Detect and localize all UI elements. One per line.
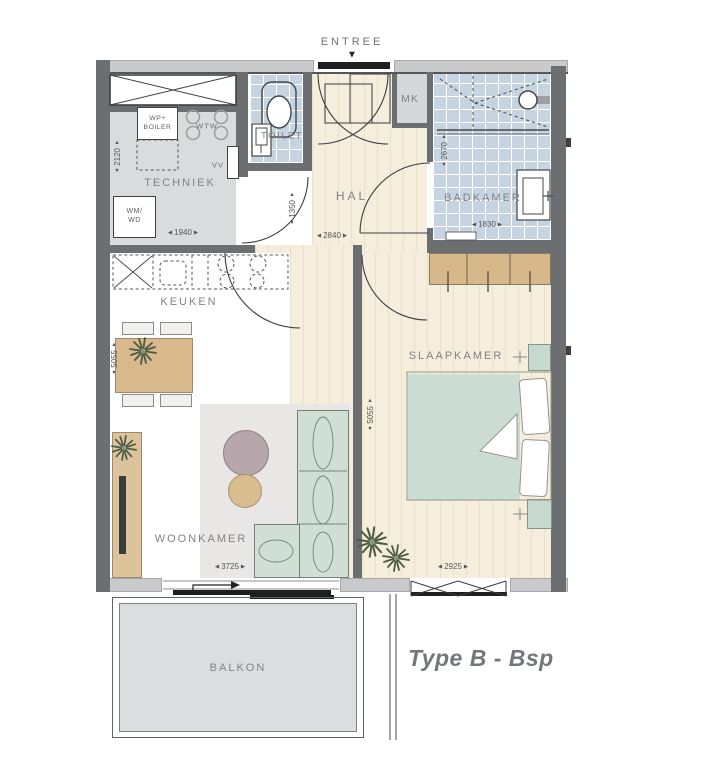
wall-toilet-bottom	[236, 163, 312, 171]
dim-living-height: ▲ 5055 ▼	[108, 342, 120, 376]
arrow-left-icon: ◀	[317, 233, 321, 239]
room-label-mk: MK	[401, 93, 419, 105]
chair	[160, 394, 192, 407]
hal-opening-floor	[255, 245, 290, 253]
dim-bedroom-height: ▲ 5055 ▼	[364, 398, 376, 432]
room-label-woonkamer: WOONKAMER	[155, 533, 248, 545]
dim-techniek-width: ◀ 1940 ▶	[168, 228, 198, 237]
arrow-left-icon: ◀	[472, 222, 476, 228]
badkamer-floor	[433, 72, 551, 240]
room-label-toilet: TOILET	[261, 131, 303, 142]
wall-badkamer-left-top	[427, 72, 433, 162]
sofa-corner-section	[254, 524, 300, 578]
vv-unit	[227, 146, 239, 179]
arrow-up-icon: ▲	[111, 342, 116, 348]
nightstand-top	[528, 344, 551, 371]
wtw-label: WTW	[196, 122, 218, 131]
wall-tick-2	[566, 346, 571, 355]
nightstand-bottom	[527, 499, 552, 529]
entry-arrow-icon: ▼	[347, 50, 357, 61]
room-label-keuken: KEUKEN	[160, 296, 217, 308]
wall-toilet-right	[303, 72, 312, 167]
arrow-right-icon: ▶	[464, 564, 468, 570]
arrow-right-icon: ▶	[343, 233, 347, 239]
chair	[160, 322, 192, 335]
arrow-up-icon: ▲	[441, 134, 446, 140]
vent-shaft	[110, 75, 236, 105]
arrow-right-icon: ▶	[194, 230, 198, 236]
arrow-up-icon: ▲	[289, 192, 294, 198]
bedroom-window-frame	[411, 592, 507, 596]
coffee-table-small	[228, 474, 262, 508]
chair	[122, 394, 154, 407]
arrow-left-icon: ◀	[438, 564, 442, 570]
tv	[119, 476, 126, 554]
arrow-down-icon: ▼	[114, 168, 119, 174]
kitchen-appliance-x	[114, 256, 152, 288]
wall-left	[96, 60, 110, 592]
floor-plan: WP+ BOILER WM/ WD	[0, 0, 707, 781]
room-label-techniek: TECHNIEK	[144, 177, 216, 189]
arrow-left-icon: ◀	[168, 230, 172, 236]
arrow-up-icon: ▲	[114, 140, 119, 146]
wardrobe	[429, 253, 551, 285]
arrow-down-icon: ▼	[367, 426, 372, 432]
dim-slaapkamer-width: ◀ 2925 ▶	[438, 562, 468, 571]
arrow-up-icon: ▲	[367, 398, 372, 404]
room-label-slaapkamer: SLAAPKAMER	[409, 350, 504, 362]
arrow-down-icon: ▼	[441, 162, 446, 168]
arrow-down-icon: ▼	[111, 370, 116, 376]
wall-hal-keuken	[96, 245, 255, 253]
privacy-screen	[390, 594, 396, 740]
dim-techniek-height: ▲ 2120 ▼	[111, 140, 123, 174]
top-wall-line	[96, 72, 568, 74]
coffee-table-large	[223, 430, 269, 476]
wm-label: WM/	[127, 208, 143, 217]
sofa-long-section	[297, 410, 349, 578]
plan-type-label: Type B - Bsp	[408, 645, 554, 672]
wall-middle	[353, 245, 362, 578]
arrow-left-icon: ◀	[215, 564, 219, 570]
wp-boiler-label-1: WP+	[149, 115, 165, 123]
arrow-down-icon: ▼	[289, 220, 294, 226]
arrow-right-icon: ▶	[241, 564, 245, 570]
wall-tick-1	[566, 138, 571, 147]
room-label-hal: HAL	[336, 189, 368, 203]
chair	[122, 322, 154, 335]
dim-hal-width: ◀ 2840 ▶	[317, 231, 347, 240]
dim-badkamer-height: ▲ 2670 ▼	[438, 134, 450, 168]
wm-wd-unit: WM/ WD	[113, 196, 156, 238]
tv-cabinet	[112, 432, 142, 578]
room-label-balkon: BALKON	[210, 662, 267, 674]
entree-label: ENTREE	[321, 36, 384, 48]
wp-boiler-label-2: BOILER	[144, 124, 172, 132]
toilet-floor	[250, 75, 303, 163]
entry-door	[318, 62, 390, 69]
bed-duvet	[408, 374, 520, 500]
dim-badkamer-width: ◀ 1830 ▶	[472, 220, 502, 229]
dining-table	[115, 338, 193, 393]
wall-right	[551, 66, 566, 592]
sliding-door-glass	[163, 581, 339, 589]
wp-boiler-unit: WP+ BOILER	[137, 107, 178, 140]
kitchen-counter	[113, 255, 288, 289]
room-label-badkamer: BADKAMER	[444, 192, 522, 204]
wall-badkamer-bottom	[427, 240, 551, 253]
arrow-right-icon: ▶	[498, 222, 502, 228]
vv-label: VV	[212, 161, 224, 170]
dim-woonkamer-width: ◀ 3725 ▶	[215, 562, 245, 571]
wd-label: WD	[128, 217, 141, 226]
exterior-band-bottom-mid	[340, 578, 410, 592]
dim-hal-nook-height: ▲ 1350 ▼	[286, 192, 298, 226]
